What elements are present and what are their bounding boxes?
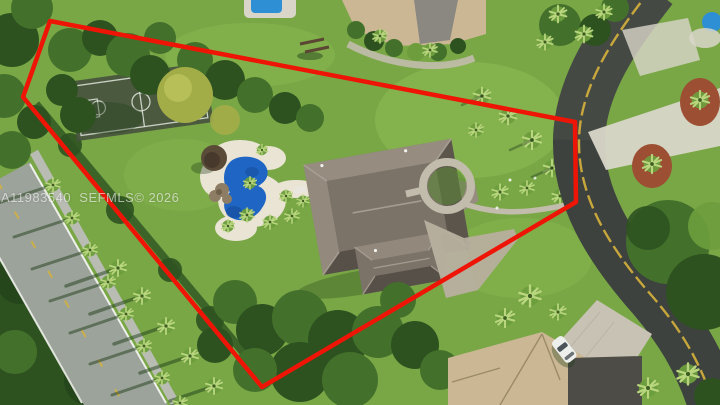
mls-watermark: A11983540 SEFMLS© 2026 bbox=[1, 190, 179, 205]
neighbor-pool bbox=[251, 0, 282, 13]
aerial-photo: A11983540 SEFMLS© 2026 bbox=[0, 0, 720, 405]
tiki-hut-roof bbox=[204, 152, 220, 168]
south-roof-dark bbox=[568, 356, 642, 405]
